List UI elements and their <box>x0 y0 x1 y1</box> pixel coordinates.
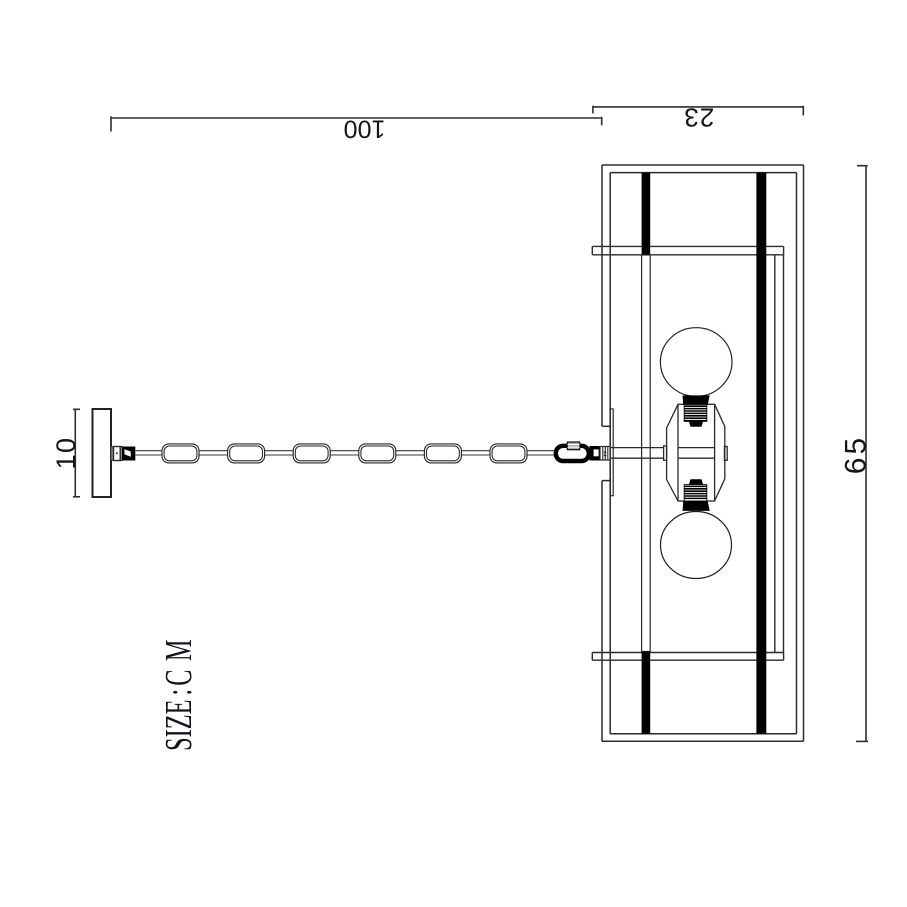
svg-text:SIZE:CM: SIZE:CM <box>157 640 199 751</box>
svg-text:10: 10 <box>51 436 81 469</box>
svg-text:65: 65 <box>840 435 873 474</box>
svg-text:100: 100 <box>344 115 386 143</box>
svg-text:23: 23 <box>683 103 714 133</box>
